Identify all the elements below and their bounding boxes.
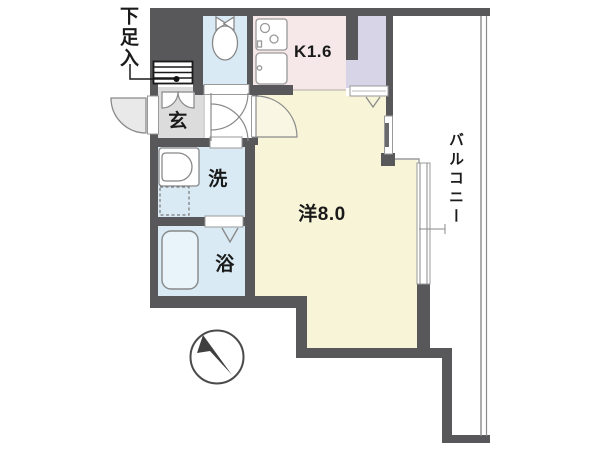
room-hall-floor bbox=[203, 90, 252, 138]
small-window-sash bbox=[385, 123, 389, 147]
floor-plan: 下足入 K1.6 玄 洗 浴 洋8.0 バルコニー bbox=[0, 0, 600, 450]
kitchen-label: K1.6 bbox=[294, 43, 332, 60]
wall-south-step bbox=[296, 296, 307, 354]
western-room-label: 洋8.0 bbox=[298, 205, 345, 224]
wall-corner-east bbox=[381, 153, 395, 166]
wall-south-upper bbox=[150, 296, 307, 308]
compass-icon bbox=[191, 331, 244, 384]
entrance-door-opening bbox=[148, 96, 159, 134]
floor-plan-drawing bbox=[0, 0, 600, 450]
shoe-storage-leader-dot bbox=[174, 76, 180, 82]
kitchen-sink-icon bbox=[256, 53, 287, 84]
wall-northeast bbox=[386, 15, 393, 116]
wall-kitchen-closet bbox=[346, 15, 358, 60]
stove-icon bbox=[256, 19, 287, 50]
washbasin-icon bbox=[159, 148, 199, 186]
bathtub-icon bbox=[162, 231, 198, 289]
wall-toilet-kitchen bbox=[247, 15, 253, 95]
balcony-sliding-window bbox=[417, 163, 430, 284]
balcony-label: バルコニー bbox=[448, 132, 463, 227]
wall-balcony-bottom bbox=[442, 435, 490, 443]
wall-east-lower bbox=[417, 284, 430, 354]
toilet-icon bbox=[213, 17, 238, 60]
bathroom-door-opening bbox=[205, 216, 243, 227]
entrance-label: 玄 bbox=[168, 112, 188, 131]
entrance-door-arc bbox=[111, 98, 146, 133]
washroom-label: 洗 bbox=[208, 170, 228, 189]
wall-balcony-west bbox=[442, 348, 452, 443]
wall-toilet-west bbox=[193, 8, 203, 93]
washroom-door-opening bbox=[210, 137, 242, 148]
shoe-storage-label: 下足入 bbox=[118, 6, 137, 69]
bathroom-label: 浴 bbox=[215, 255, 235, 274]
